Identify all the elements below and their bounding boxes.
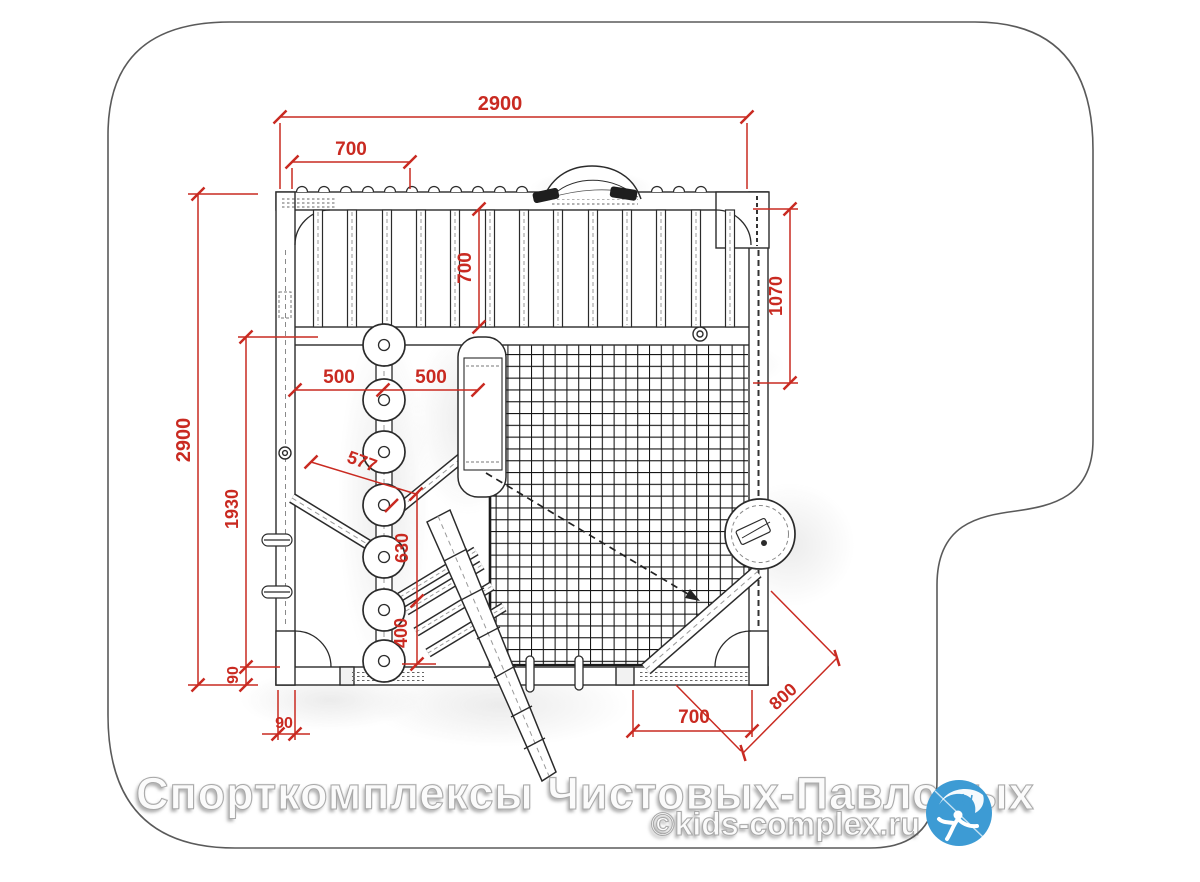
slide-panel xyxy=(458,337,506,497)
dim-post-bottom: 90 xyxy=(275,715,293,732)
dim-rung-bay: 700 xyxy=(455,252,476,284)
dim-top-segment: 700 xyxy=(335,139,367,160)
dim-post-left: 90 xyxy=(225,666,242,684)
dim-ladder-run: 400 xyxy=(391,618,411,648)
dim-stairs-run: 630 xyxy=(392,533,412,563)
blueprint-page: Спорткомплексы Чистовых-Павловых ©kids-c… xyxy=(0,0,1200,882)
dim-overall-width: 2900 xyxy=(478,93,523,115)
kids-complex-logo xyxy=(925,779,993,847)
dim-right-offset: 1070 xyxy=(766,276,786,316)
dim-bottom-bay: 700 xyxy=(678,707,710,728)
basket-ring xyxy=(725,499,795,569)
technical-drawing: 2900 700 700 1070 2900 1930 90 90 500 50… xyxy=(0,0,1200,882)
dim-inner-depth: 1930 xyxy=(222,489,242,529)
dim-disc-right: 500 xyxy=(415,367,447,388)
dim-overall-depth: 2900 xyxy=(173,418,195,463)
dim-disc-left: 500 xyxy=(323,367,355,388)
dim-corner-diagonal: 800 xyxy=(765,679,801,714)
monkey-bar-rungs xyxy=(314,210,735,327)
